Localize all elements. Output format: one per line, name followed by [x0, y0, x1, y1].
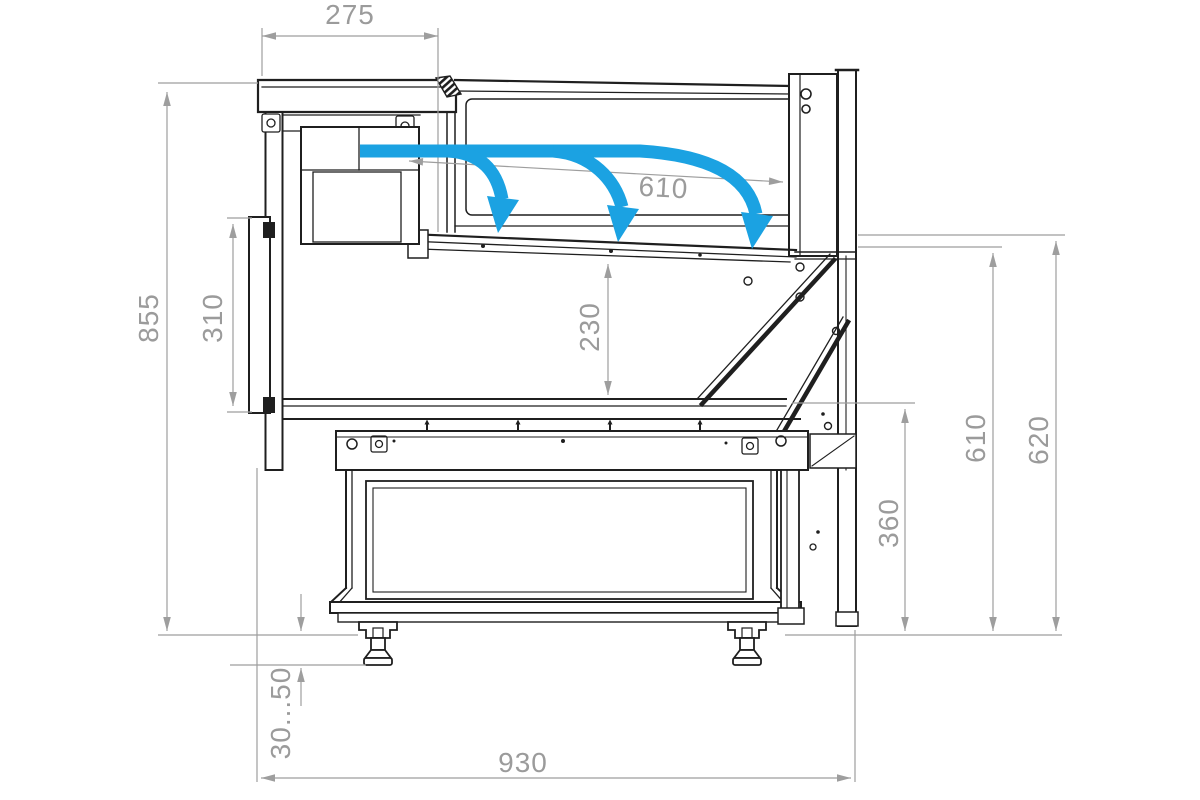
- dimension-label-deck-length: 610: [638, 171, 689, 205]
- pin: [698, 420, 703, 432]
- adjustable-foot-right: [728, 622, 766, 665]
- pin: [608, 420, 613, 432]
- rear-wall: [836, 70, 858, 626]
- display-well: [283, 399, 800, 419]
- dimension-label-well-depth: 230: [574, 302, 605, 352]
- bolt-pins: [425, 420, 703, 432]
- adjustable-foot-left: [359, 622, 397, 665]
- airflow-arrow-middle: [553, 151, 639, 242]
- display-deck: [408, 230, 796, 262]
- canopy: [258, 76, 461, 112]
- drawing-canvas: 275 610 855 310 230 360: [0, 0, 1200, 800]
- dimension-label-overall-depth: 930: [498, 747, 548, 778]
- dimension-label-foot-adjustment: 30...50: [265, 667, 296, 760]
- dimension-label-overall-height: 855: [133, 293, 164, 343]
- pin: [516, 420, 521, 432]
- dimension-deck-level-height: 610: [858, 247, 1002, 631]
- support-rail: [336, 431, 856, 470]
- dimension-label-canopy-width: 275: [325, 0, 375, 30]
- dimension-well-depth: 230: [574, 264, 608, 395]
- dimension-foot-adjustment: 30...50: [265, 594, 301, 759]
- base-pedestal: [330, 470, 801, 622]
- dimension-label-deck-level-height: 610: [960, 413, 991, 463]
- dimension-label-counter-top-height: 620: [1023, 415, 1054, 465]
- dimension-overall-height: 855: [133, 83, 258, 631]
- dimension-front-panel-height: 310: [197, 218, 252, 412]
- pin: [425, 420, 430, 432]
- rear-post: [789, 74, 837, 256]
- cabinet-drawing: [249, 70, 858, 665]
- dimension-label-front-panel-height: 310: [197, 293, 228, 343]
- technical-drawing: 275 610 855 310 230 360: [0, 0, 1200, 800]
- dimension-label-base-section-height: 360: [873, 498, 904, 548]
- datum-lines: [158, 635, 1062, 665]
